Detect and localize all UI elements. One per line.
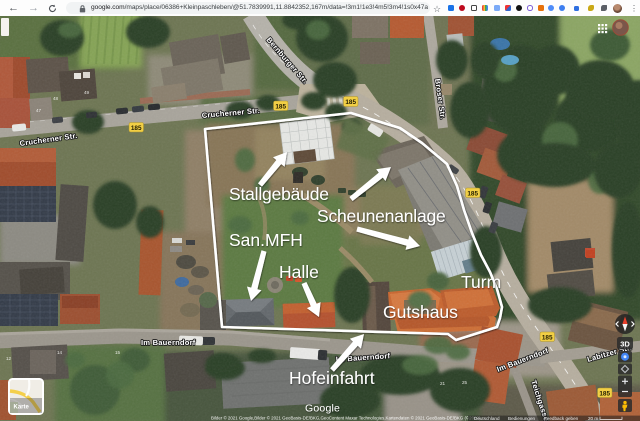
svg-text:185: 185 bbox=[275, 103, 286, 110]
svg-text:21: 21 bbox=[440, 381, 446, 386]
svg-text:San.MFH: San.MFH bbox=[229, 230, 303, 250]
svg-text:Bilder © 2021 Google,Bilder ©: Bilder © 2021 Google,Bilder © 2021 GeoBa… bbox=[211, 416, 481, 421]
svg-text:48: 48 bbox=[53, 96, 59, 101]
svg-text:Google: Google bbox=[305, 403, 340, 415]
svg-text:3D: 3D bbox=[620, 339, 630, 348]
svg-text:Bedienungen: Bedienungen bbox=[508, 416, 536, 421]
svg-text:185: 185 bbox=[542, 334, 553, 341]
svg-text:12: 12 bbox=[6, 356, 12, 361]
svg-text:25: 25 bbox=[462, 380, 468, 385]
svg-text:185: 185 bbox=[599, 390, 610, 397]
svg-text:Stallgebäude: Stallgebäude bbox=[229, 184, 329, 204]
svg-text:Deutschland: Deutschland bbox=[474, 416, 500, 421]
svg-text:Gutshaus: Gutshaus bbox=[383, 302, 458, 322]
svg-text:Feedback geben: Feedback geben bbox=[544, 416, 579, 421]
svg-text:185: 185 bbox=[467, 190, 478, 197]
svg-text:Turm: Turm bbox=[461, 272, 501, 292]
svg-text:14: 14 bbox=[57, 350, 63, 355]
svg-text:Im Bauerndorf: Im Bauerndorf bbox=[141, 338, 196, 347]
svg-text:Halle: Halle bbox=[279, 262, 319, 282]
svg-text:Hofeinfahrt: Hofeinfahrt bbox=[289, 368, 375, 388]
svg-text:49: 49 bbox=[84, 90, 90, 95]
svg-text:Karte: Karte bbox=[14, 405, 30, 411]
svg-text:15: 15 bbox=[115, 350, 121, 355]
svg-text:185: 185 bbox=[131, 125, 142, 132]
svg-text:47: 47 bbox=[36, 108, 42, 113]
svg-text:185: 185 bbox=[345, 99, 356, 106]
svg-text:20 m: 20 m bbox=[588, 416, 598, 421]
svg-text:Scheunenanlage: Scheunenanlage bbox=[317, 206, 446, 226]
